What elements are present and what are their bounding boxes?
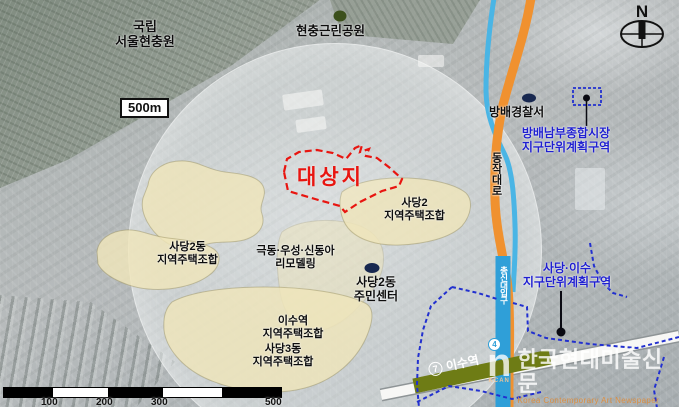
scale-tick-300: 300 (151, 397, 168, 407)
label-bangbae-police: 방배경찰서 (489, 106, 544, 120)
newspaper-watermark: n KCAN 한국현대미술신문 Korea Contemporary Art N… (487, 348, 679, 405)
cemetery-line1: 국립 (133, 19, 157, 34)
label-hyeonchung-park: 현충근린공원 (296, 24, 365, 38)
scale-tick-200: 200 (96, 397, 113, 407)
label-dongjak-daero: 동작대로 (488, 152, 504, 196)
line7-number-badge: 7 (427, 360, 444, 377)
radius-label-500m: 500m (120, 98, 169, 118)
watermark-text: 한국현대미술신문 Korea Contemporary Art Newspape… (517, 348, 679, 405)
map-overlay-graphics (0, 0, 679, 407)
bangbae-dot (583, 95, 590, 102)
sadang-isu-dot (557, 328, 566, 337)
scale-tick-100: 100 (41, 397, 58, 407)
north-compass-icon: N (612, 2, 670, 52)
label-sadang2dong-assoc: 사당2동 지역주택조합 (140, 241, 235, 266)
polygon-sadang2dong-upper (142, 161, 264, 249)
label-bangbae-market-district: 방배남부종합시장 지구단위계획구역 (500, 127, 632, 154)
park-dot (334, 11, 347, 22)
watermark-title: 한국현대미술신문 (517, 348, 679, 396)
label-isu-station-assoc: 이수역 지역주택조합 (248, 315, 338, 340)
label-sadang2-assoc: 사당2 지역주택조합 (362, 197, 467, 222)
cemetery-line2: 서울현충원 (115, 34, 175, 49)
label-line4-station: 총신대입구 (498, 266, 510, 304)
label-community-center: 사당2동 주민센터 (336, 276, 416, 303)
label-geukdong-remodeling: 극동·우성·신동아 리모델링 (238, 245, 353, 270)
police-dot (522, 94, 536, 103)
label-sadang3dong-assoc: 사당3동 지역주택조합 (238, 343, 328, 368)
community-center-dot (365, 263, 380, 273)
scale-tick-500: 500 (265, 397, 282, 407)
watermark-kcan: KCAN (487, 378, 511, 384)
label-sadang-isu-district: 사당·이수 지구단위계획구역 (503, 262, 631, 289)
watermark-logo: n KCAN (487, 348, 511, 384)
label-national-cemetery: 국립 서울현충원 (100, 20, 190, 50)
watermark-subtitle: Korea Contemporary Art Newspaper (517, 396, 679, 405)
svg-text:N: N (636, 2, 648, 21)
label-target-site: 대상지 (297, 166, 364, 190)
watermark-logo-n: n (487, 348, 511, 378)
scale-bar: 100 200 300 500 (3, 387, 282, 407)
aerial-map: 국립 서울현충원 현충근린공원 500m 방배경찰서 방배남부종합시장 지구단위… (0, 0, 679, 407)
